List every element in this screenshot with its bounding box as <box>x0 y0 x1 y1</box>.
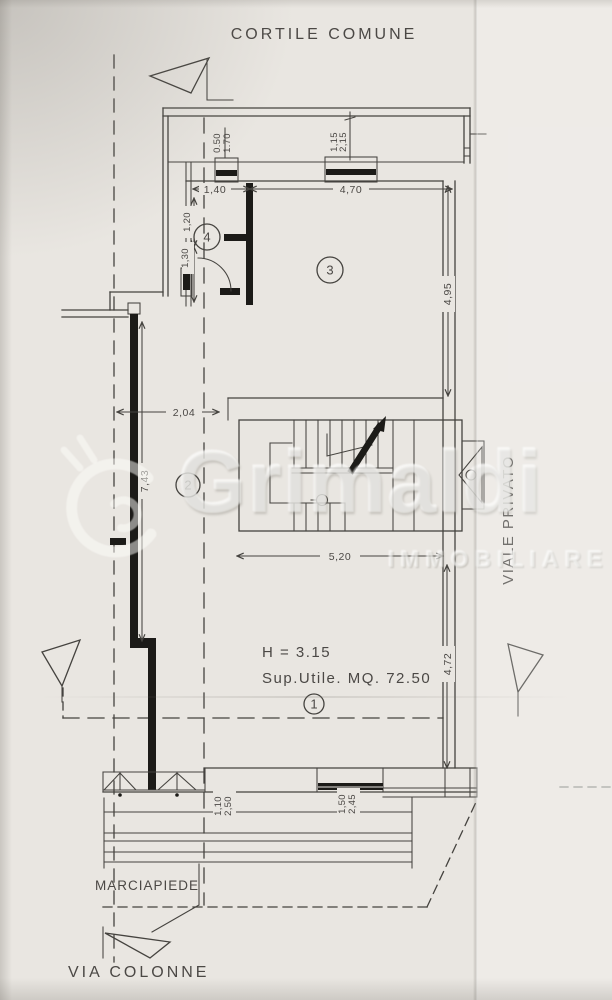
floor-plan-scan: 1 2 3 4 CORTILE COMUNE VIA COLONNE MARCI… <box>0 0 612 1000</box>
dim-room3-depth: 4,95 <box>442 283 454 305</box>
dim-front-window-right-h: 2,45 <box>347 794 358 814</box>
door-swing-arc <box>198 258 231 291</box>
outer-walls <box>62 108 486 768</box>
dim-left-wall-length: 7,43 <box>139 470 151 492</box>
street-label-top: CORTILE COMUNE <box>231 26 418 43</box>
section-marker-bottom-icon <box>103 905 199 958</box>
threshold-step-icon <box>104 773 136 797</box>
dim-room4-top-width: 1,40 <box>204 184 226 196</box>
front-wall <box>103 768 477 797</box>
plan-drawing: 1 2 3 4 CORTILE COMUNE VIA COLONNE MARCI… <box>0 0 612 1000</box>
street-label-bottom: VIA COLONNE <box>68 964 209 981</box>
sidewalk-label: MARCIAPIEDE <box>95 878 199 893</box>
height-note: H = 3.15 <box>262 644 331 661</box>
section-markers <box>42 58 543 958</box>
room-labels: 1 2 3 4 <box>176 224 343 714</box>
dim-top-window-left-h: 1.70 <box>222 133 233 153</box>
dim-top-window-mid-h: 2,15 <box>338 132 349 152</box>
dim-room1-depth: 4,72 <box>442 653 454 675</box>
dim-room4-lower: 1,30 <box>180 248 191 268</box>
dim-corridor-width: 2,04 <box>173 407 195 419</box>
dim-room4-upper: 1,20 <box>182 212 193 232</box>
room-label-2: 2 <box>184 478 191 493</box>
street-label-right: VIALE PRIVATO <box>500 455 517 585</box>
room-label-4: 4 <box>203 230 210 245</box>
dim-front-door-left-h: 2,50 <box>223 796 234 816</box>
entry-door <box>459 441 484 509</box>
section-marker-top-icon <box>150 58 233 100</box>
section-marker-right-icon <box>508 644 543 716</box>
room-label-3: 3 <box>326 263 333 278</box>
dim-room3-top-width: 4,70 <box>340 184 362 196</box>
staircase <box>239 416 462 531</box>
windows <box>215 112 377 182</box>
dim-stair-block-width: 5,20 <box>329 551 351 563</box>
section-marker-left-icon <box>42 640 80 702</box>
surface-note: Sup.Utile. MQ. 72.50 <box>262 670 431 687</box>
threshold-step-icon <box>158 773 196 797</box>
room-label-1: 1 <box>310 697 317 712</box>
